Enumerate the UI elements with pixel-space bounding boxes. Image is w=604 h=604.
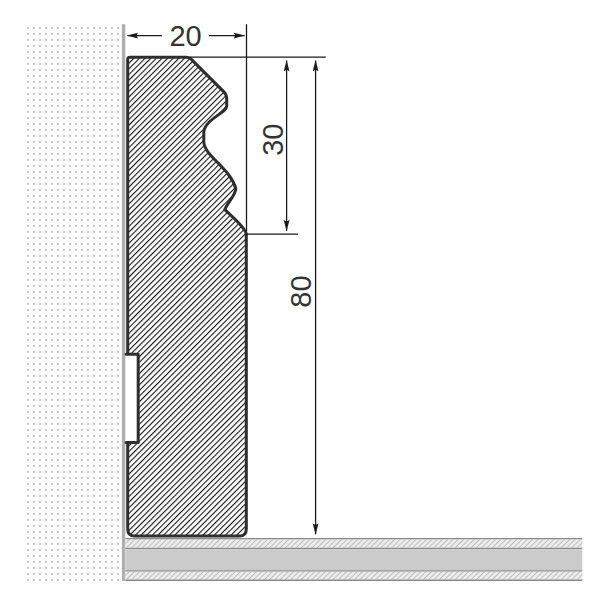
svg-text:30: 30 (257, 124, 289, 156)
svg-text:20: 20 (169, 20, 201, 52)
svg-text:80: 80 (285, 275, 317, 307)
